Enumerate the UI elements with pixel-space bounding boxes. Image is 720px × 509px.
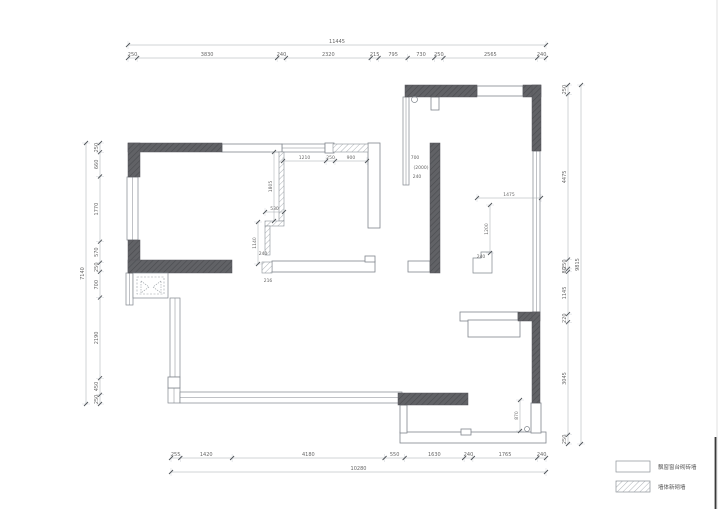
interior-dim-text: 700 [411,155,420,161]
wall-sill [400,405,407,433]
wall-sill [368,143,380,228]
dim-label: 570 [94,247,100,257]
dim-label: 250 [128,52,138,58]
dim-label: 10280 [351,466,367,472]
dim-label: 1210 [299,155,311,161]
dim-label: 700 [94,280,100,290]
dim-label: 2565 [484,52,497,58]
dim-label: 530 [270,206,279,212]
interior-dim-row: 1210250900 [281,155,369,165]
dim-label: 1145 [562,287,568,300]
dim-label: 240 [464,452,474,458]
dim-label: 1200 [484,223,490,235]
dim-label: 1420 [200,452,213,458]
dim-label: 1475 [503,192,515,198]
dim-label: 870 [514,411,520,420]
wall-new [265,226,270,255]
wall-sill [468,320,520,337]
dim-label: 7140 [80,267,86,280]
wall-sill [168,377,180,388]
wall-sill [222,144,282,152]
fixture-circle [525,427,530,432]
interior-dim-text: (2000) [414,165,429,171]
dim-label: 240 [537,52,547,58]
wall-new [262,262,272,273]
dim-label: 1770 [94,203,100,216]
dim-label: 4180 [302,452,315,458]
wall-new [333,144,368,152]
wall-sill [477,86,523,96]
dim-label: 900 [347,155,356,161]
wall-sill [408,261,430,272]
interior-dim-row: 1140 [252,220,262,266]
wall-dark [532,312,540,403]
interior-dim-text: 240 [413,174,422,180]
interior-dim-text: 240 [477,254,486,260]
dim-row-top-segments: 250383024023202157957302502565240 [126,52,548,62]
interior-dim-text: 216 [264,278,273,284]
wall-dark [532,85,541,151]
interior-dim-row: 870 [514,398,524,433]
wall-sill [365,256,375,262]
dim-row-top-total: 11445 [126,39,548,49]
wall-sill [325,143,334,153]
dim-row-bottom-total: 10280 [169,466,548,476]
dim-row-left-total: 7140 [80,141,90,406]
wall-sill [400,432,546,443]
legend: 飘窗窗台砌砖墙 墙体新砌墙 [616,461,697,492]
interior-dim-row: 1200 [484,203,494,255]
door-pivot-circle [412,97,418,103]
dim-label: 250 [94,143,100,153]
dim-label: 255 [171,452,181,458]
dim-label: 215 [370,52,380,58]
wall-dark [128,260,232,273]
wall-new [265,221,284,226]
dim-label: 240 [537,452,547,458]
legend-label-new-wall: 墙体新砌墙 [658,483,686,491]
legend-label-sill: 飘窗窗台砌砖墙 [658,463,697,471]
wall-dark [405,85,477,97]
wall-sill [431,97,439,110]
dim-label: 250 [326,155,335,161]
dim-label: 1765 [499,452,512,458]
dim-row-right-total: 9815 [575,83,585,446]
dim-label: 250 [94,262,100,272]
dim-label: 80 [562,267,568,273]
wall-dark [398,393,468,405]
wall-dark [128,143,140,177]
interior-dim-text: 240 [259,251,268,257]
dim-row-bottom-segments: 2551420418055016302401765240 [169,452,548,462]
legend-swatch-sill [616,461,650,472]
dim-label: 3045 [562,372,568,385]
dim-label: 550 [390,452,400,458]
dim-label: 1805 [268,181,274,193]
dim-label: 4475 [562,171,568,184]
wall-sill [531,403,541,433]
wall-sill [272,261,375,272]
dim-label: 250 [562,85,568,95]
dim-label: 2190 [94,332,100,345]
dim-label: 250 [94,395,100,405]
dim-label: 1140 [252,237,258,249]
dim-label: 1630 [428,452,441,458]
floor-plan-svg: 飘窗窗台砌砖墙 墙体新砌墙 25038302402320215795730250… [0,0,720,509]
dim-row-right-segments: 25044752508011452203045250 [562,83,572,446]
wall-sill [461,429,471,435]
dim-label: 250 [434,52,444,58]
dim-label: 660 [94,160,100,170]
legend-swatch-new-wall [616,481,650,492]
dim-label: 240 [277,52,287,58]
dim-label: 450 [94,382,100,392]
dim-label: 3830 [201,52,214,58]
floor-plan-sheet: 飘窗窗台砌砖墙 墙体新砌墙 25038302402320215795730250… [0,0,720,509]
dim-label: 11445 [329,39,345,45]
dim-label: 2320 [322,52,335,58]
dim-row-left-segments: 25066017705702507002190450250 [94,141,104,406]
dim-label: 220 [562,313,568,323]
dim-label: 9815 [575,258,581,271]
dim-label: 795 [388,52,398,58]
wall-dark [128,143,222,152]
dim-label: 250 [562,435,568,445]
dim-label: 730 [416,52,426,58]
wall-dark [430,143,440,273]
